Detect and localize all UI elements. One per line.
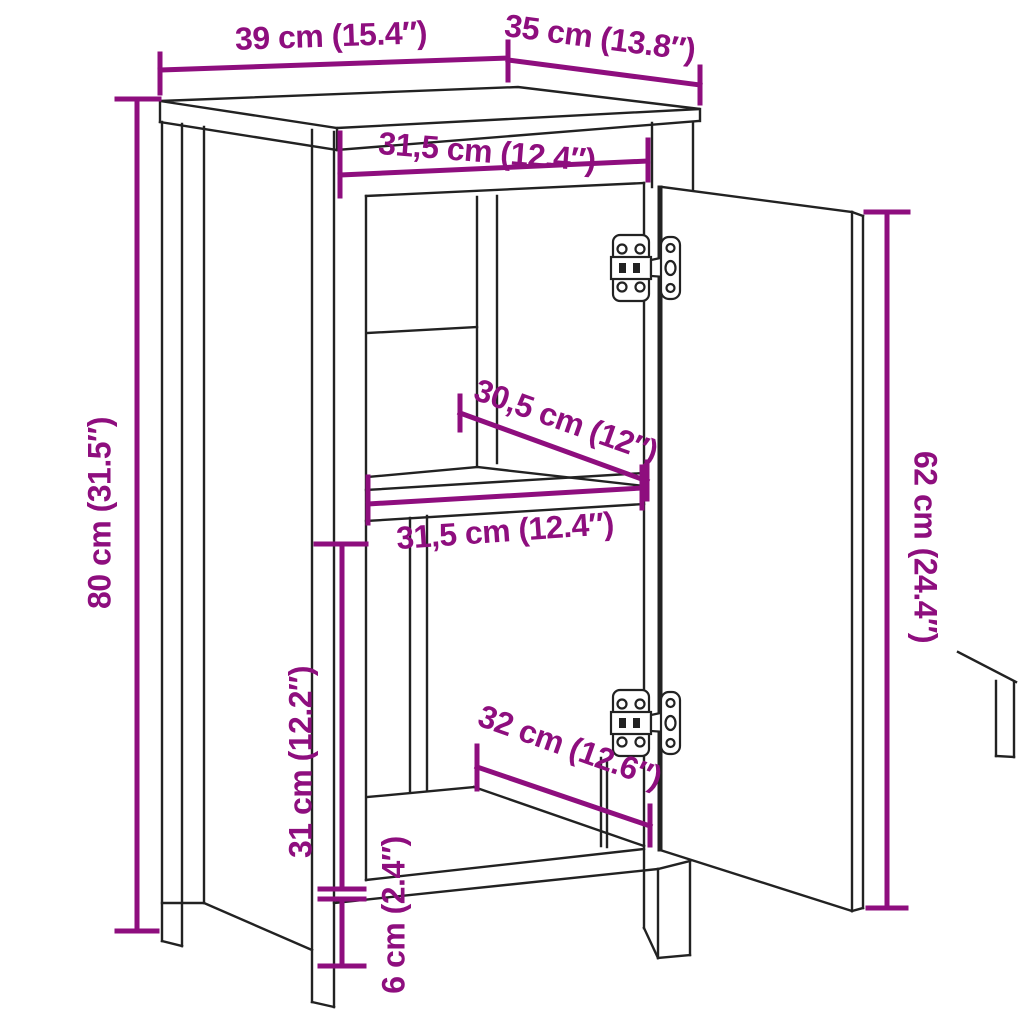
diagram-canvas: 39 cm (15.4″) 35 cm (13.8″) 31,5 cm (12.… <box>0 0 1024 1024</box>
dim-label-door-height: 62 cm (24.4″) <box>907 451 944 643</box>
cabinet-interior-upper <box>366 196 644 521</box>
cabinet-front-right-leg <box>644 846 690 958</box>
dim-label-top-width: 39 cm (15.4″) <box>234 14 427 58</box>
dimension-lines <box>117 42 908 966</box>
dim-label-total-height: 80 cm (31.5″) <box>82 417 119 609</box>
dim-label-lower-compartment-height: 31 cm (12.2″) <box>283 666 320 858</box>
dim-label-plinth-height: 6 cm (2.4″) <box>376 836 413 993</box>
cabinet-rear-right-leg <box>958 652 1016 757</box>
hinge-top-icon <box>611 235 680 301</box>
cabinet-door <box>660 187 863 911</box>
